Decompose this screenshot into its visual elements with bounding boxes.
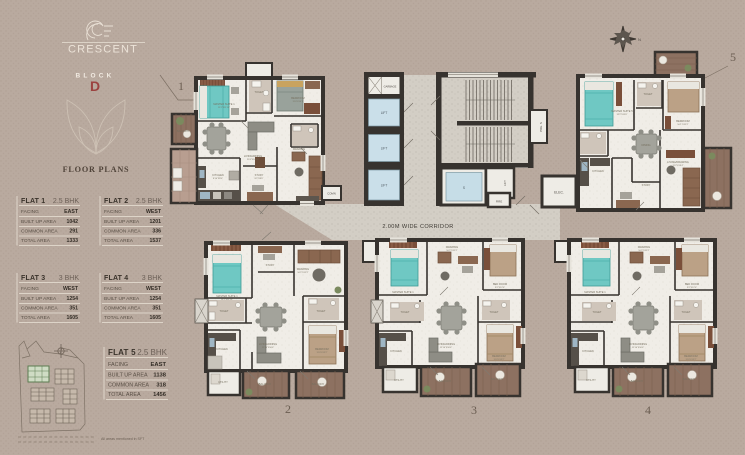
svg-text:351: 351 [152,306,161,312]
svg-text:BED ROOM: BED ROOM [685,282,699,286]
svg-text:FLAT 4: FLAT 4 [104,275,128,282]
svg-text:LIFT: LIFT [381,184,388,188]
svg-text:TOILET: TOILET [254,90,263,94]
svg-text:FLAT 5: FLAT 5 [108,348,136,357]
svg-text:1537: 1537 [149,238,161,244]
svg-text:12'10"X10'4": 12'10"X10'4" [632,347,645,349]
svg-text:1456: 1456 [153,392,167,398]
svg-text:KITCHEN: KITCHEN [216,347,228,351]
svg-text:351: 351 [69,306,78,312]
svg-text:WEST: WEST [146,209,162,215]
svg-text:MASTER SUITE 1: MASTER SUITE 1 [216,294,238,298]
svg-text:318: 318 [156,383,166,389]
svg-text:TOILET: TOILET [489,310,498,314]
svg-text:12'2"X11'0": 12'2"X11'0" [617,114,628,116]
svg-text:11'0"X12'2": 11'0"X12'2" [686,359,697,361]
svg-text:KITCHEN: KITCHEN [582,349,594,353]
svg-text:FLAT 2: FLAT 2 [104,198,128,205]
svg-text:3 BHK: 3 BHK [59,275,80,282]
svg-text:UTILITY: UTILITY [586,378,596,382]
svg-text:1254: 1254 [149,296,161,302]
svg-text:N: N [638,37,641,42]
svg-text:FACING: FACING [104,209,122,215]
svg-text:BED ROOM: BED ROOM [493,282,507,286]
svg-text:GARBAGE: GARBAGE [384,85,397,89]
svg-text:3 BHK: 3 BHK [142,275,163,282]
svg-text:BEDROOM: BEDROOM [291,96,304,100]
svg-text:FACING: FACING [21,209,39,215]
svg-text:STUDY: STUDY [642,183,651,187]
svg-text:3: 3 [471,403,477,417]
svg-text:LIVING/DRAWING: LIVING/DRAWING [667,160,689,164]
svg-text:336: 336 [152,229,161,235]
svg-text:10'2"X12'2": 10'2"X12'2" [638,250,649,252]
svg-text:COMN: COMN [327,192,336,196]
svg-text:5: 5 [730,50,736,64]
svg-text:TOILET: TOILET [643,92,652,96]
svg-text:11'2"X11'10": 11'2"X11'10" [589,295,601,297]
svg-text:1254: 1254 [66,296,78,302]
svg-text:BEDROOM: BEDROOM [676,119,689,123]
svg-text:LIFT: LIFT [381,147,388,151]
svg-text:TOILET: TOILET [316,309,325,313]
svg-text:10'1"X12'2": 10'1"X12'2" [677,124,688,126]
svg-text:DRAWING: DRAWING [638,245,650,249]
svg-text:BALCONY: BALCONY [259,382,272,386]
svg-text:COMMON AREA: COMMON AREA [21,229,58,235]
svg-text:291: 291 [69,229,78,235]
svg-text:FLAT 3: FLAT 3 [21,275,45,282]
svg-text:BEDROOM: BEDROOM [492,354,505,358]
svg-text:TOTAL AREA: TOTAL AREA [104,238,134,244]
svg-text:MASTER SUITE 1: MASTER SUITE 1 [213,102,235,106]
svg-text:LIFT: LIFT [503,180,507,186]
svg-text:FACING: FACING [108,362,128,368]
svg-text:11'0"X12'2": 11'0"X12'2" [494,359,505,361]
svg-text:2.00M WIDE CORRIDOR: 2.00M WIDE CORRIDOR [382,224,453,230]
svg-text:BALCONY: BALCONY [491,377,504,381]
svg-text:11'0"X10'1": 11'0"X10'1" [293,101,304,103]
svg-text:S: S [463,186,465,190]
svg-text:UTILITY: UTILITY [394,378,404,382]
svg-text:10'2"X12'2": 10'2"X12'2" [297,272,308,274]
svg-text:LIFT: LIFT [381,111,388,115]
svg-text:BALCONY: BALCONY [439,379,452,383]
svg-text:BALCONY: BALCONY [631,379,644,383]
svg-text:LIVING/DINING: LIVING/DINING [437,342,455,346]
svg-text:UTILITY: UTILITY [218,380,228,384]
svg-text:FACING: FACING [21,286,39,292]
svg-text:BUILT UP AREA: BUILT UP AREA [104,219,140,225]
svg-text:1605: 1605 [66,315,78,321]
svg-text:TOTAL AREA: TOTAL AREA [104,315,134,321]
svg-text:FLOOR PLANS: FLOOR PLANS [63,165,130,174]
svg-text:COMMON AREA: COMMON AREA [104,306,141,312]
svg-text:8'2"X8'0": 8'2"X8'0" [255,178,264,180]
svg-text:COMMON AREA: COMMON AREA [21,306,58,312]
svg-text:EAST: EAST [64,209,79,215]
svg-text:STUDY: STUDY [255,173,264,177]
svg-text:1042: 1042 [66,219,78,225]
svg-text:DRAWING: DRAWING [297,267,309,271]
svg-text:TOTAL AREA: TOTAL AREA [21,315,51,321]
svg-text:MASTER SUITE 1: MASTER SUITE 1 [392,290,414,294]
svg-text:MASTER SUITE 5: MASTER SUITE 5 [611,109,633,113]
svg-text:12'10"X10'4": 12'10"X10'4" [262,347,275,349]
svg-text:BUILT UP AREA: BUILT UP AREA [21,296,57,302]
svg-text:4: 4 [645,403,651,417]
svg-text:BUILT UP AREA: BUILT UP AREA [104,296,140,302]
svg-text:12'10"X10'4": 12'10"X10'4" [440,347,453,349]
svg-text:BALCONY: BALCONY [312,382,325,386]
svg-text:KITCHEN: KITCHEN [592,169,604,173]
svg-text:8'10"X8'0": 8'10"X8'0" [213,178,223,180]
svg-text:BUILT UP AREA: BUILT UP AREA [21,219,57,225]
svg-text:2.5 BHK: 2.5 BHK [136,198,162,205]
svg-text:TOILET: TOILET [681,310,690,314]
svg-text:DRAWING: DRAWING [446,245,458,249]
svg-text:10'2"X12'2": 10'2"X12'2" [293,152,304,154]
svg-text:BEDROOM: BEDROOM [684,354,697,358]
svg-text:BUILT UP AREA: BUILT UP AREA [108,373,148,379]
svg-text:BALCONY: BALCONY [177,129,190,133]
svg-text:EAST: EAST [151,362,167,368]
svg-text:COMMON AREA: COMMON AREA [104,229,141,235]
svg-text:WEST: WEST [146,286,162,292]
svg-text:MASTER SUITE 1: MASTER SUITE 1 [584,290,606,294]
svg-text:FLAT 1: FLAT 1 [21,198,45,205]
svg-text:TOILET: TOILET [400,310,409,314]
svg-text:1605: 1605 [149,315,161,321]
svg-text:FIRE: FIRE [496,200,503,204]
svg-text:TOILET: TOILET [592,310,601,314]
svg-text:COMMON AREA: COMMON AREA [108,383,149,389]
svg-text:2.5 BHK: 2.5 BHK [137,348,167,357]
svg-text:2.5 BHK: 2.5 BHK [53,198,79,205]
svg-text:BEDROOM: BEDROOM [315,347,328,351]
svg-text:KITCHEN: KITCHEN [212,173,224,177]
svg-text:11'0"X12'2": 11'0"X12'2" [317,352,328,354]
svg-text:11'2"X11'10": 11'2"X11'10" [221,299,233,301]
svg-text:11'2"X13'4": 11'2"X13'4" [673,165,684,167]
svg-text:10'2"X12'2": 10'2"X12'2" [446,250,457,252]
svg-text:STUDY: STUDY [266,263,275,267]
svg-text:ELEC.: ELEC. [554,191,564,195]
svg-text:LIVING/DINING: LIVING/DINING [244,154,262,158]
svg-text:TOTAL AREA: TOTAL AREA [21,238,51,244]
svg-text:PRE. S: PRE. S [539,122,543,132]
svg-text:1138: 1138 [153,373,166,379]
svg-text:21'6"X10'10": 21'6"X10'10" [247,159,260,161]
svg-text:11'2"X11'10": 11'2"X11'10" [397,295,409,297]
svg-text:LIVING/DINING: LIVING/DINING [259,342,277,346]
svg-text:1: 1 [178,79,184,93]
svg-text:TOILET: TOILET [219,309,228,313]
svg-text:LIVING/DINING: LIVING/DINING [629,342,647,346]
svg-text:D: D [90,78,100,94]
svg-text:All areas mentioned in SFT: All areas mentioned in SFT [101,437,145,441]
svg-text:FACING: FACING [104,286,122,292]
svg-text:DINING: DINING [641,143,650,147]
svg-text:11'2"X11'10": 11'2"X11'10" [218,107,230,109]
svg-text:WEST: WEST [63,286,79,292]
svg-text:BALCONY: BALCONY [683,377,696,381]
svg-text:2: 2 [285,402,291,416]
svg-text:KITCHEN: KITCHEN [390,349,402,353]
svg-text:TOTAL AREA: TOTAL AREA [108,392,141,398]
svg-text:CRESCENT: CRESCENT [68,44,138,56]
svg-text:9'2"X12'0": 9'2"X12'0" [687,287,697,289]
svg-text:1201: 1201 [149,219,161,225]
svg-text:9'2"X12'0": 9'2"X12'0" [495,287,505,289]
svg-text:1333: 1333 [66,238,78,244]
